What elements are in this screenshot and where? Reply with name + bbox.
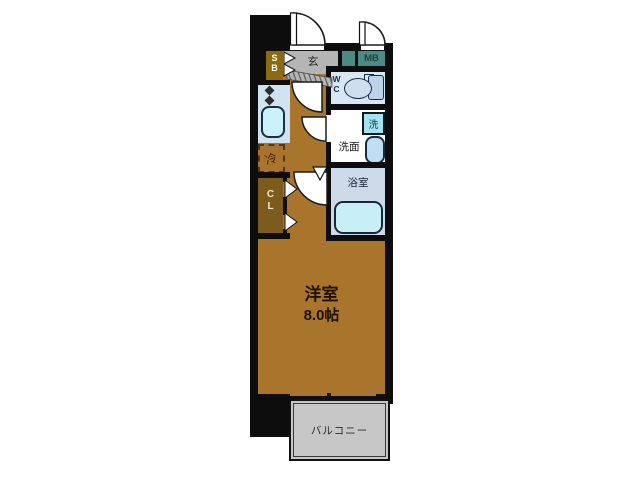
wall-bottom-left-block [250,394,290,437]
wall-right [385,43,393,404]
toilet-bowl [344,78,372,99]
wall-closet-jamb-mid [283,197,287,215]
wall-wc-top [330,66,393,72]
meter-box-label: MB [364,53,379,64]
refrigerator-label: 冷 [263,149,280,169]
vanity-basin [365,136,385,164]
mb-door-leaf [360,22,366,45]
main-room-name: 洋室 [258,284,385,306]
wall-washroom-bath [331,162,393,168]
main-room-label: 洋室 8.0帖 [258,284,385,326]
entrance-door-swing [293,13,325,45]
kitchen-sink [261,106,285,138]
bathtub [334,201,383,234]
washroom-label: 洗面 [333,139,365,154]
wall-closet-jamb-bottom [283,229,287,233]
balcony-label-wrap: バルコニー [291,401,388,459]
refrigerator-space: 冷 [258,144,285,173]
balcony: バルコニー [289,399,390,461]
washing-machine: 洗 [362,112,385,135]
wall-left [250,15,258,437]
wall-wc-washroom [331,104,393,110]
washroom-door-opening [326,115,331,142]
entrance-label-wrap: 玄 [296,51,330,70]
mb-door-opening [361,43,384,51]
floorplan-canvas: MB SB WC 洗 洗面 浴室 冷 CL 洋室 8.0帖 [0,0,640,480]
shoe-box: SB [266,51,283,80]
entrance-label: 玄 [308,53,319,69]
closet: CL [258,178,283,233]
meter-box: MB [358,51,385,66]
closet-label: CL [266,189,276,212]
balcony-label: バルコニー [311,423,368,438]
washing-machine-label: 洗 [369,116,379,131]
wall-under-shoebox [258,80,290,85]
wall-shoebox-left [258,51,266,81]
wall-closet-bottom [250,233,290,239]
main-room-size: 8.0帖 [258,306,385,326]
pipe-space [342,51,355,66]
entrance-door-opening [290,43,324,51]
mb-door-swing [362,22,385,45]
shoe-box-label: SB [270,53,279,74]
wall-hall-vertical [326,66,331,241]
bathroom-label: 浴室 [331,175,385,190]
wall-bath-bottom [326,235,393,241]
toilet-label: WC [332,75,341,95]
wall-closet-jamb-top [283,178,287,182]
wall-mb-sep [355,51,358,66]
wall-genkan-sep [338,51,342,66]
entrance-door-leaf [291,13,297,45]
